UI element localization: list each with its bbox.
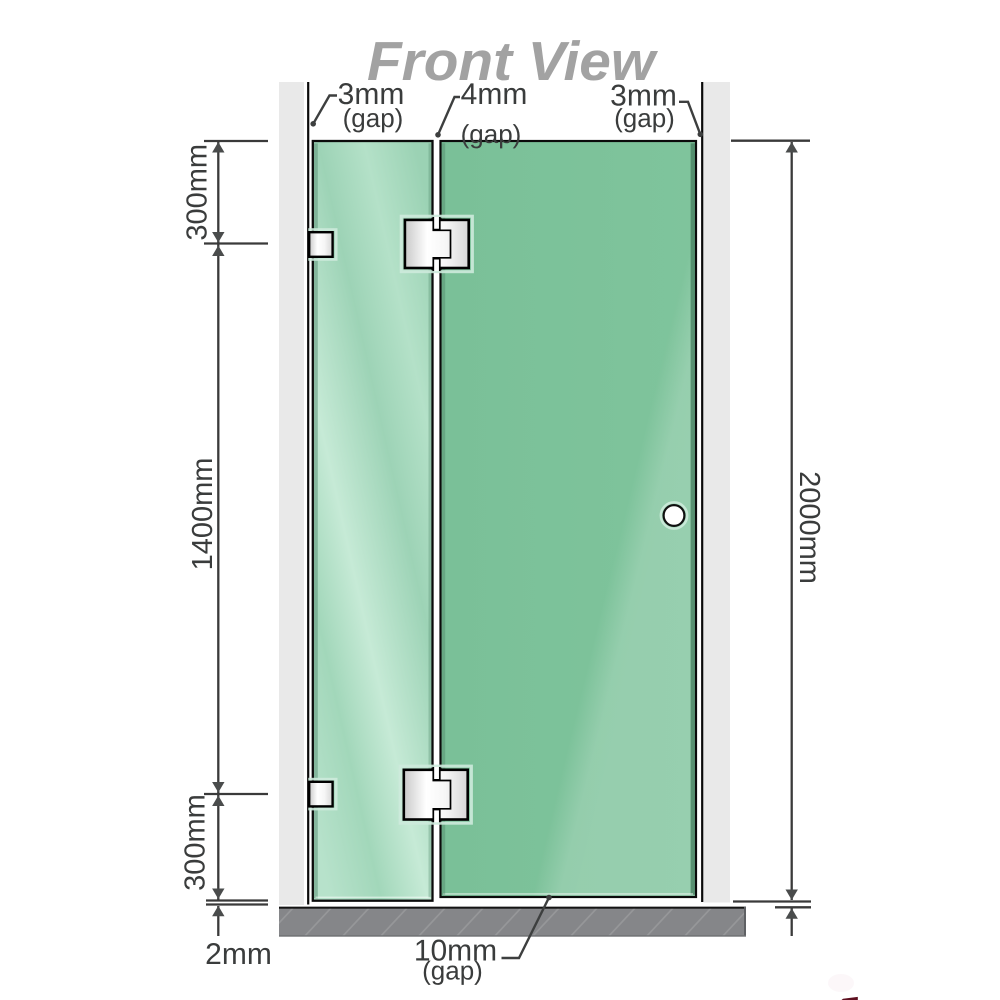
svg-text:2mm: 2mm — [205, 938, 272, 971]
svg-text:(gap): (gap) — [343, 103, 404, 133]
svg-text:300mm: 300mm — [180, 794, 212, 891]
svg-text:1400mm: 1400mm — [187, 458, 219, 571]
svg-text:(gap): (gap) — [461, 119, 522, 149]
svg-text:(gap): (gap) — [422, 956, 483, 986]
svg-text:(gap): (gap) — [614, 103, 675, 133]
svg-text:300mm: 300mm — [182, 144, 214, 241]
svg-text:2000mm: 2000mm — [793, 471, 825, 584]
svg-text:Front View: Front View — [367, 30, 658, 92]
